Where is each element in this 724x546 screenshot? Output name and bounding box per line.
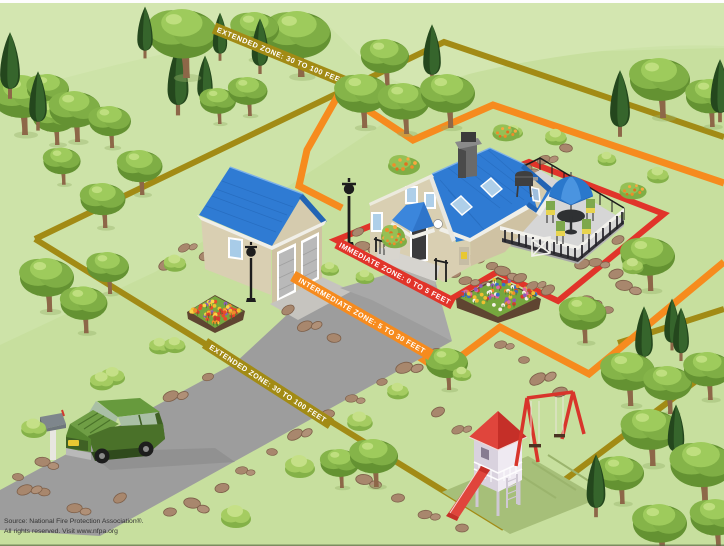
svg-text:All rights reserved. Visit www: All rights reserved. Visit www.nfpa.org bbox=[4, 528, 118, 535]
svg-text:Source: National Fire Protecti: Source: National Fire Protection Associa… bbox=[4, 517, 144, 525]
